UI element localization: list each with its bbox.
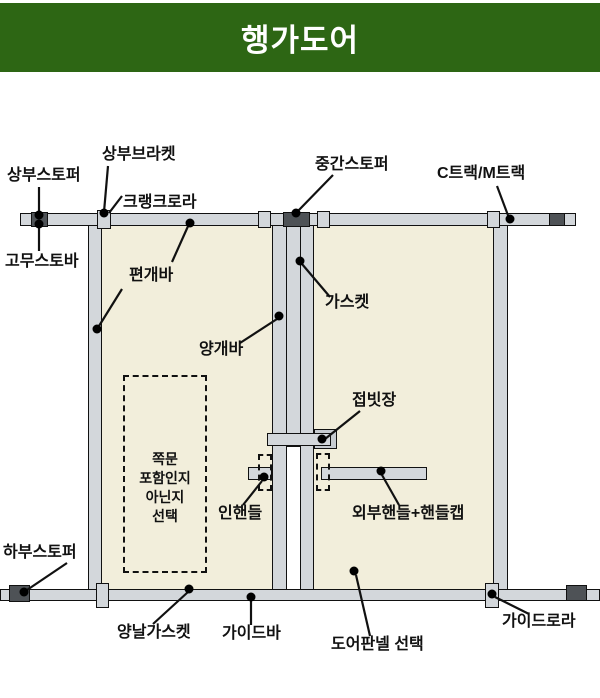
label-middle-stopper: 중간스토퍼 — [315, 156, 389, 174]
side-door-note-line-3: 아닌지 — [125, 488, 205, 507]
label-gasket: 가스켓 — [325, 294, 369, 312]
side-door-note: 쪽문 포함인지 아닌지 선택 — [125, 450, 205, 526]
left-leaf-meeting-stile — [272, 225, 287, 590]
label-folding-latch: 접빗장 — [352, 392, 396, 410]
label-track: C트랙/M트랙 — [437, 165, 525, 183]
label-outer-handle: 외부핸들+핸들캡 — [352, 505, 464, 523]
side-door-note-line-1: 쪽문 — [125, 450, 205, 469]
hanger-door-diagram-page: 행가도어 — [0, 0, 600, 698]
label-inner-handle: 인핸들 — [218, 505, 262, 523]
label-top-stopper: 상부스토퍼 — [7, 167, 81, 185]
crank-roller-right-center — [317, 211, 330, 228]
middle-stopper-block — [283, 212, 310, 227]
top-right-stopper-block — [549, 213, 565, 226]
bottom-guide-track-bar — [0, 589, 600, 601]
label-guide-bar: 가이드바 — [222, 625, 281, 643]
outer-handle-dashed-outline — [316, 453, 330, 491]
folding-latch-bar — [267, 433, 331, 446]
left-guide-roller-block — [96, 583, 109, 608]
label-bottom-stopper: 하부스토퍼 — [3, 544, 77, 562]
label-door-panel-select: 도어판넬 선택 — [331, 636, 424, 654]
right-leaf-meeting-stile — [300, 225, 314, 590]
title-banner: 행가도어 — [0, 3, 600, 72]
leader-line-top-bracket — [104, 166, 108, 212]
label-guide-roller: 가이드로라 — [502, 613, 576, 631]
crank-roller-left-center — [258, 211, 271, 228]
center-gasket-strip — [286, 225, 301, 447]
left-outer-stile-bar — [88, 225, 102, 590]
leader-line-bottom-stopper — [27, 563, 67, 590]
outer-handle-bar — [321, 467, 427, 480]
right-guide-roller-block — [485, 583, 499, 608]
side-door-note-line-4: 선택 — [125, 507, 205, 526]
bottom-right-stopper-block — [566, 585, 587, 601]
inner-handle-dashed-outline — [258, 454, 272, 491]
page-title: 행가도어 — [241, 15, 359, 60]
label-rubber-stopper: 고무스토바 — [5, 253, 79, 271]
top-left-stopper-block — [31, 212, 48, 227]
leader-line-middle-stopper — [297, 175, 333, 212]
label-double-edge-gasket: 양날가스켓 — [117, 624, 191, 642]
side-door-note-line-2: 포함인지 — [125, 469, 205, 488]
crank-roller-right — [487, 211, 500, 228]
right-door-panel — [313, 225, 494, 590]
bottom-left-stopper-block — [9, 585, 30, 602]
label-crank-roller: 크랭크로라 — [123, 194, 197, 212]
label-top-bracket: 상부브라켓 — [102, 146, 176, 164]
label-double-leaf-bar: 양개바 — [199, 341, 243, 359]
top-bracket-roller — [97, 210, 111, 229]
label-single-leaf-bar: 편개바 — [129, 267, 173, 285]
right-outer-stile-bar — [493, 225, 508, 590]
